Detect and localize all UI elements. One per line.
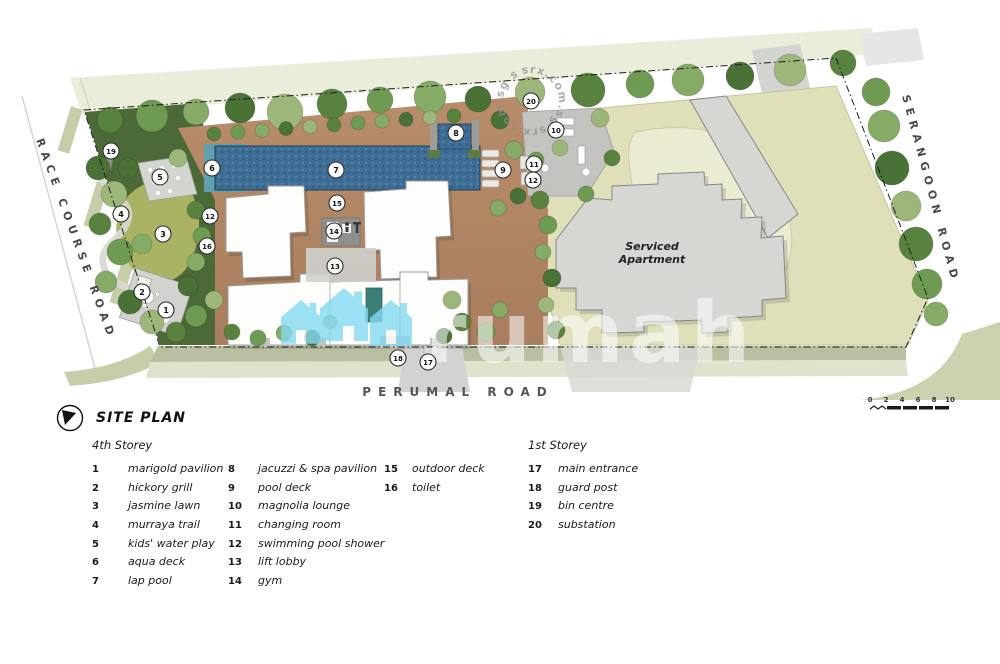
tree	[224, 324, 240, 340]
legend-item-number: 13	[228, 557, 258, 568]
legend-item-6: 6aqua deck	[92, 555, 223, 574]
plan-marker-number: 18	[393, 355, 403, 363]
legend-item-4: 4murraya trail	[92, 518, 223, 537]
legend-item-number: 6	[92, 557, 128, 568]
legend-item-label: magnolia lounge	[258, 499, 350, 512]
legend-header: SITE PLAN	[56, 404, 186, 432]
tree	[862, 78, 890, 106]
tree	[899, 227, 933, 261]
legend-column-2: 8jacuzzi & spa pavilion9pool deck10magno…	[228, 438, 384, 593]
legend-item-number: 4	[92, 520, 128, 531]
tree	[169, 149, 187, 167]
tree	[539, 216, 557, 234]
legend-item-label: bin centre	[558, 499, 614, 512]
tree	[552, 140, 568, 156]
legend-item-19: 19bin centre	[528, 499, 638, 518]
road-corner-verge	[64, 346, 160, 386]
tree	[255, 123, 269, 137]
legend-item-17: 17main entrance	[528, 462, 638, 481]
legend-item-13: 13lift lobby	[228, 555, 384, 574]
tree	[591, 109, 609, 127]
north-arrow-icon	[56, 404, 84, 432]
scale-tick: 4	[900, 396, 905, 404]
tree	[774, 54, 806, 86]
tree	[279, 122, 293, 136]
legend-item-label: guard post	[558, 481, 617, 494]
legend-item-7: 7lap pool	[92, 574, 223, 593]
legend-item-number: 2	[92, 483, 128, 494]
legend-title: SITE PLAN	[96, 410, 186, 426]
legend-item-label: substation	[558, 518, 616, 531]
legend-item-3: 3jasmine lawn	[92, 499, 223, 518]
plan-marker-number: 14	[329, 228, 339, 236]
legend-item-number: 7	[92, 576, 128, 587]
tree	[132, 234, 152, 254]
plan-marker-number: 17	[423, 359, 433, 367]
legend-item-10: 10magnolia lounge	[228, 499, 384, 518]
legend-item-number: 12	[228, 539, 258, 550]
tree	[375, 114, 389, 128]
legend-item-1: 1marigold pavilion	[92, 462, 223, 481]
legend-column-header: 1st Storey	[528, 438, 638, 462]
plan-marker-number: 11	[529, 161, 539, 169]
legend-column-3: 15outdoor deck16toilet	[384, 438, 485, 499]
tree	[423, 111, 437, 125]
plan-marker-number: 15	[332, 200, 342, 208]
tree	[672, 64, 704, 96]
scale-bar-segments	[887, 406, 949, 410]
legend-item-2: 2hickory grill	[92, 481, 223, 500]
plan-marker-number: 12	[205, 213, 215, 221]
plan-marker-number: 1	[163, 306, 169, 315]
legend-item-label: lap pool	[128, 574, 172, 587]
legend-item-number: 10	[228, 501, 258, 512]
legend-item-label: jasmine lawn	[128, 499, 200, 512]
corner-slab	[860, 28, 924, 66]
legend-column-4: 1st Storey17main entrance18guard post19b…	[528, 438, 638, 537]
legend-item-number: 17	[528, 464, 558, 475]
tree	[207, 127, 221, 141]
tree	[535, 244, 551, 260]
site-plan-page: rumah srx.com.sg srx.com.sg srx.com.sg 1…	[0, 0, 1000, 664]
tree	[86, 156, 110, 180]
scale-bar: 0246810	[866, 395, 962, 415]
plan-marker-number: 10	[551, 127, 561, 135]
plan-marker-number: 3	[160, 230, 166, 239]
plan-marker-number: 6	[209, 164, 215, 173]
legend-item-label: gym	[258, 574, 282, 587]
rumah-watermark-text: rumah	[425, 284, 755, 382]
tree	[89, 213, 111, 235]
perumal-road-label: PERUMAL ROAD	[362, 385, 553, 399]
scale-tick: 10	[945, 396, 955, 404]
tree	[185, 305, 207, 327]
plan-marker-number: 5	[157, 173, 163, 182]
tree	[303, 120, 317, 134]
legend-item-9: 9pool deck	[228, 481, 384, 500]
legend-item-number: 11	[228, 520, 258, 531]
legend-item-number: 15	[384, 464, 412, 475]
tree	[465, 86, 491, 112]
tree	[118, 158, 138, 178]
tree	[830, 50, 856, 76]
tree	[399, 112, 413, 126]
legend-item-label: hickory grill	[128, 481, 192, 494]
legend-item-number: 1	[92, 464, 128, 475]
legend-item-label: jacuzzi & spa pavilion	[258, 462, 377, 475]
legend-item-number: 3	[92, 501, 128, 512]
legend-column-1: 4th Storey1marigold pavilion2hickory gri…	[92, 438, 223, 593]
scale-tick: 2	[884, 396, 889, 404]
tree	[571, 73, 605, 107]
tree	[726, 62, 754, 90]
legend-column-header	[384, 438, 485, 462]
legend-item-label: murraya trail	[128, 518, 200, 531]
tree	[250, 330, 266, 346]
legend-item-number: 19	[528, 501, 558, 512]
legend-item-label: changing room	[258, 518, 341, 531]
legend-item-label: lift lobby	[258, 555, 306, 568]
legend-item-18: 18guard post	[528, 481, 638, 500]
plan-marker-number: 12	[528, 177, 538, 185]
legend-item-number: 8	[228, 464, 258, 475]
legend-item-number: 18	[528, 483, 558, 494]
plan-marker-number: 13	[330, 263, 340, 271]
site-plan-drawing: rumah srx.com.sg srx.com.sg srx.com.sg 1…	[0, 0, 1000, 400]
plan-marker-number: 7	[333, 166, 339, 175]
scale-bar-zigzag	[870, 406, 886, 409]
legend-item-8: 8jacuzzi & spa pavilion	[228, 462, 384, 481]
legend-item-number: 9	[228, 483, 258, 494]
tree	[225, 93, 255, 123]
tree	[626, 70, 654, 98]
legend-item-label: outdoor deck	[412, 462, 485, 475]
legend-item-number: 14	[228, 576, 258, 587]
legend-item-12: 12swimming pool shower	[228, 537, 384, 556]
legend-item-number: 20	[528, 520, 558, 531]
legend-column-header	[228, 438, 384, 462]
tree	[178, 276, 198, 296]
scale-tick: 6	[916, 396, 921, 404]
tree	[578, 186, 594, 202]
scale-tick: 8	[932, 396, 937, 404]
legend-item-5: 5kids' water play	[92, 537, 223, 556]
legend-column-header: 4th Storey	[92, 438, 223, 462]
tree	[97, 107, 123, 133]
legend-item-number: 5	[92, 539, 128, 550]
tree	[166, 322, 186, 342]
legend-item-15: 15outdoor deck	[384, 462, 485, 481]
plan-marker-number: 9	[500, 166, 506, 175]
tree	[351, 116, 365, 130]
tree	[604, 150, 620, 166]
legend-item-number: 16	[384, 483, 412, 494]
plan-marker-number: 16	[202, 243, 212, 251]
tree	[510, 188, 526, 204]
tree	[327, 118, 341, 132]
svg-text:Serviced: Serviced	[625, 240, 679, 253]
plan-marker-number: 4	[118, 210, 124, 219]
tree	[187, 253, 205, 271]
plan-marker-number: 20	[526, 98, 536, 106]
tree	[231, 125, 245, 139]
tree	[924, 302, 948, 326]
legend-item-label: main entrance	[558, 462, 638, 475]
legend-item-11: 11changing room	[228, 518, 384, 537]
legend-item-label: kids' water play	[128, 537, 215, 550]
tree	[531, 191, 549, 209]
legend-item-label: marigold pavilion	[128, 462, 223, 475]
legend-item-label: toilet	[412, 481, 440, 494]
legend-item-14: 14gym	[228, 574, 384, 593]
tree	[505, 141, 523, 159]
legend-item-16: 16toilet	[384, 481, 485, 500]
legend-item-label: aqua deck	[128, 555, 185, 568]
serviced-apartment-label: Serviced Apartment	[618, 240, 686, 266]
tree	[447, 109, 461, 123]
tree	[868, 110, 900, 142]
legend-item-20: 20substation	[528, 518, 638, 537]
svg-text:Apartment: Apartment	[618, 253, 686, 266]
plan-marker-number: 2	[139, 288, 145, 297]
tree	[875, 151, 909, 185]
plan-marker-number: 19	[106, 148, 116, 156]
plan-marker-number: 8	[453, 129, 459, 138]
scale-tick: 0	[868, 396, 873, 404]
tree	[891, 191, 921, 221]
tree	[490, 200, 506, 216]
tree	[367, 87, 393, 113]
tree	[205, 291, 223, 309]
legend-item-label: swimming pool shower	[258, 537, 384, 550]
legend-item-label: pool deck	[258, 481, 311, 494]
